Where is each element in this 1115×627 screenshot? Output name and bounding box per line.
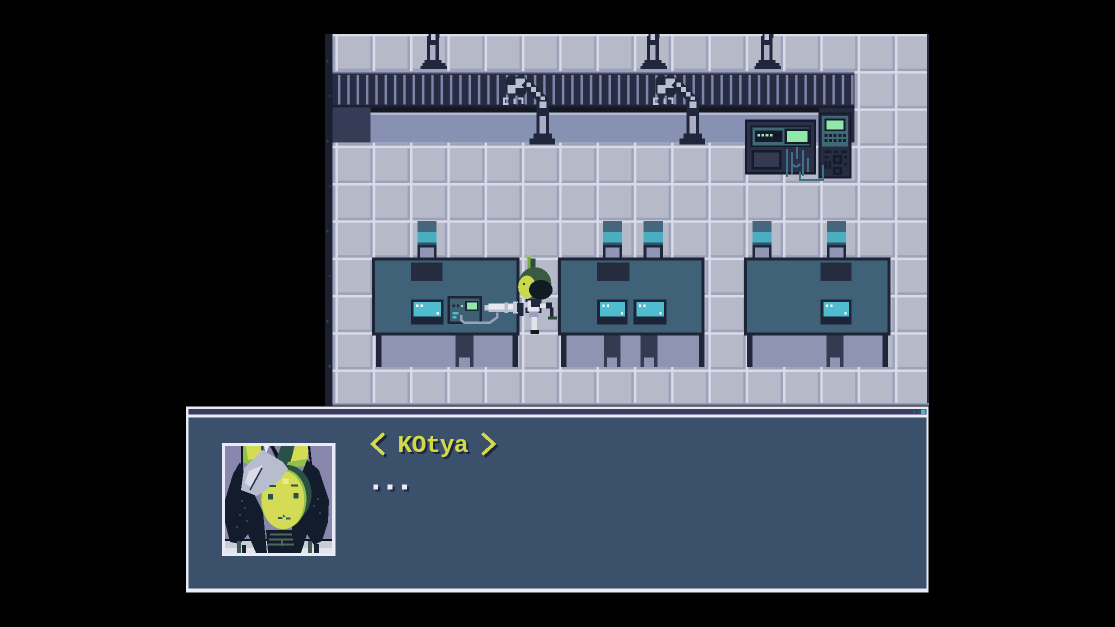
svg-text:KOtya: KOtya: [398, 433, 469, 460]
